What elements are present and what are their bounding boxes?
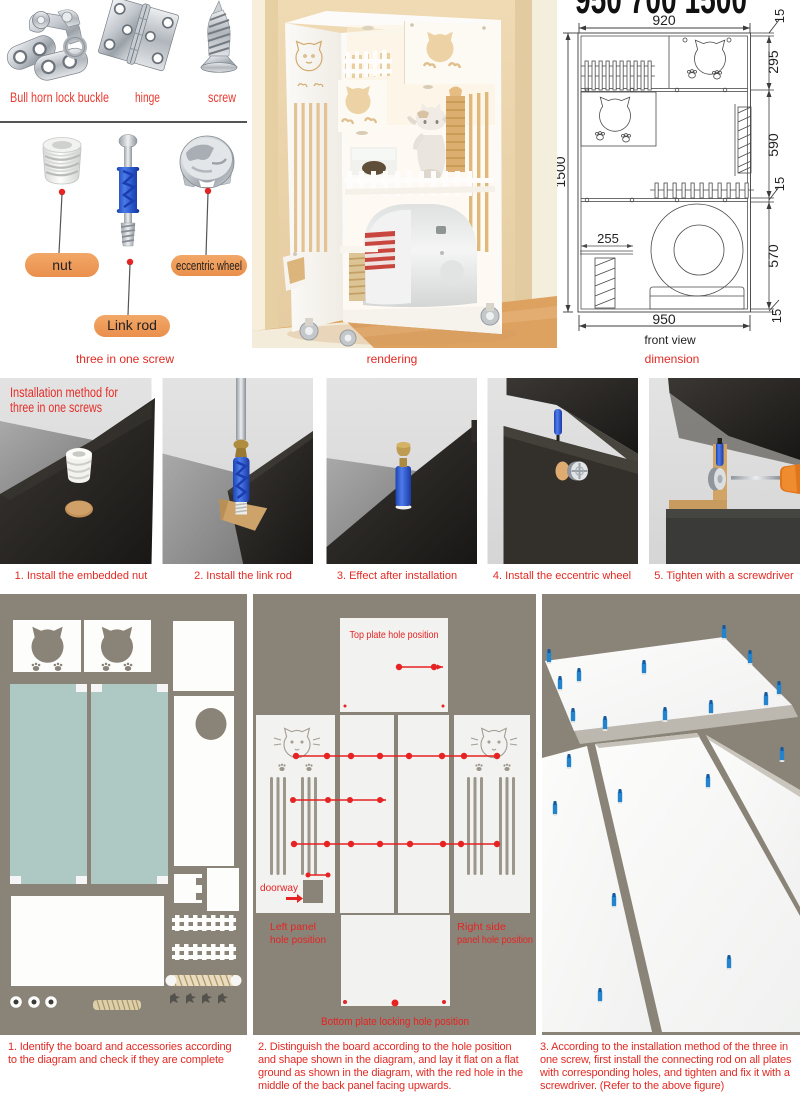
svg-text:Left panel: Left panel [270,921,316,933]
svg-text:screw: screw [208,89,237,105]
svg-text:Installation method for: Installation method for [10,385,118,400]
svg-text:590: 590 [765,133,781,157]
svg-text:Link rod: Link rod [107,317,157,333]
svg-text:15: 15 [769,309,784,323]
svg-text:920: 920 [652,12,676,28]
svg-text:Top plate hole position: Top plate hole position [350,629,439,641]
svg-text:doorway: doorway [260,882,299,894]
svg-text:Bottom plate locking hole posi: Bottom plate locking hole position [321,1016,469,1028]
svg-text:570: 570 [765,244,781,268]
svg-text:1500: 1500 [557,156,568,187]
svg-text:front view: front view [644,333,696,347]
svg-text:three in one screws: three in one screws [10,400,102,415]
svg-text:Right side: Right side [457,921,506,933]
svg-text:nut: nut [52,257,72,273]
svg-text:15: 15 [772,9,787,23]
svg-text:panel hole position: panel hole position [457,934,533,946]
svg-text:950: 950 [652,311,676,327]
svg-text:Bull horn lock buckle: Bull horn lock buckle [10,89,109,105]
svg-text:eccentric wheel: eccentric wheel [176,258,242,273]
svg-text:255: 255 [597,231,619,246]
svg-text:hole position: hole position [270,934,326,946]
svg-text:hinge: hinge [135,89,160,105]
svg-text:295: 295 [765,50,781,74]
svg-text:15: 15 [772,177,787,191]
